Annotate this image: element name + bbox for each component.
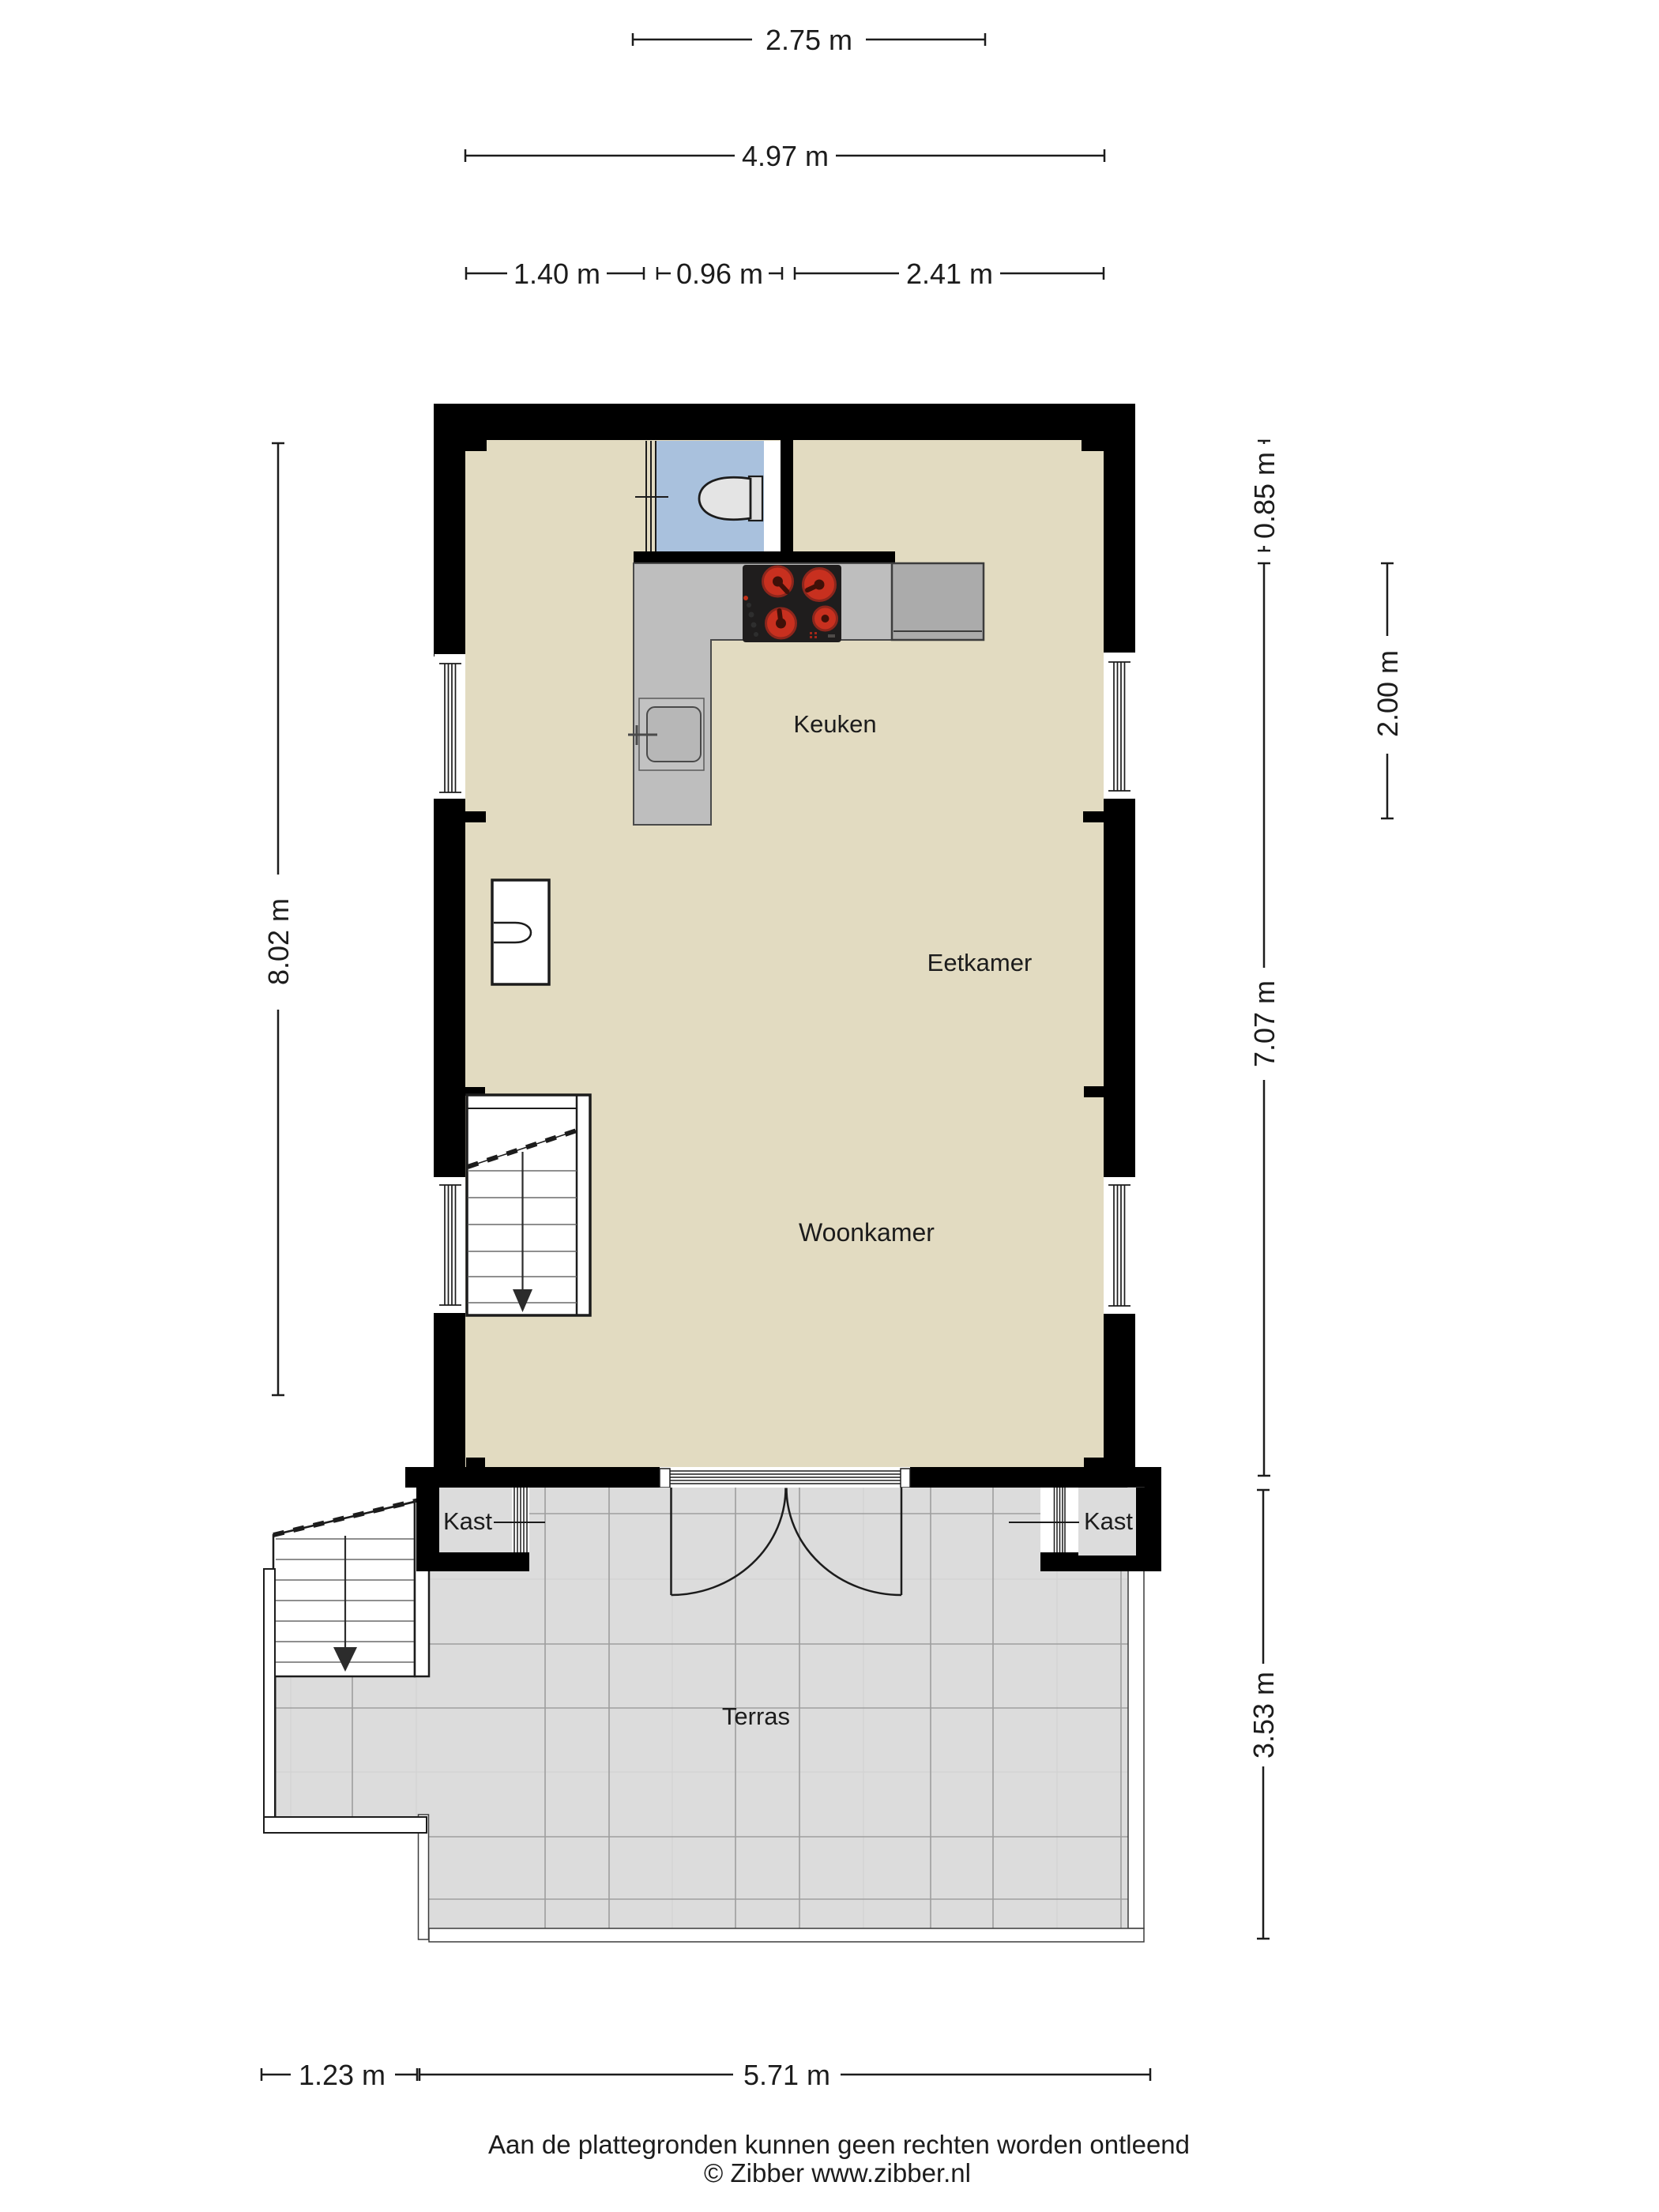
svg-text:2.00 m: 2.00 m	[1371, 650, 1404, 737]
svg-text:3.53 m: 3.53 m	[1247, 1672, 1280, 1759]
svg-text:1.40 m: 1.40 m	[513, 258, 600, 290]
svg-text:4.97 m: 4.97 m	[742, 140, 829, 172]
svg-text:8.02 m: 8.02 m	[262, 898, 295, 985]
svg-text:Eetkamer: Eetkamer	[927, 949, 1033, 976]
svg-text:Terras: Terras	[722, 1702, 790, 1730]
svg-text:0.96 m: 0.96 m	[676, 258, 763, 290]
svg-text:2.75 m: 2.75 m	[766, 24, 852, 56]
svg-text:Keuken: Keuken	[793, 710, 876, 738]
svg-text:© Zibber www.zibber.nl: © Zibber www.zibber.nl	[704, 2158, 971, 2188]
svg-text:0.85 m: 0.85 m	[1248, 452, 1281, 539]
svg-text:Aan de plattegronden kunnen ge: Aan de plattegronden kunnen geen rechten…	[488, 2130, 1190, 2159]
svg-text:Kast: Kast	[1084, 1507, 1133, 1535]
svg-text:Kast: Kast	[443, 1507, 492, 1535]
svg-text:7.07 m: 7.07 m	[1248, 980, 1281, 1067]
svg-text:Woonkamer: Woonkamer	[799, 1218, 935, 1247]
svg-text:1.23 m: 1.23 m	[299, 2059, 386, 2091]
svg-text:5.71 m: 5.71 m	[743, 2059, 830, 2091]
svg-text:2.41 m: 2.41 m	[906, 258, 993, 290]
